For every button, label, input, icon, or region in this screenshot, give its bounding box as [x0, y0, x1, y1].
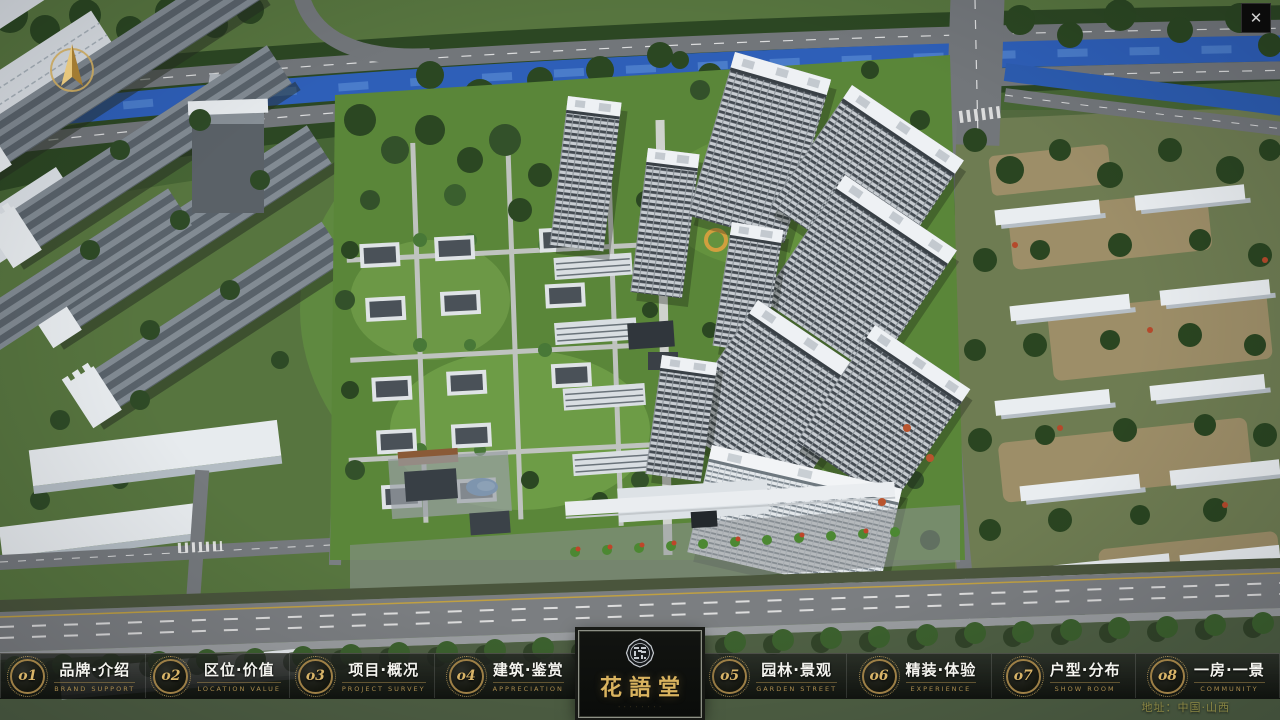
nav-group-left: o1 品牌·介绍 BRAND SUPPORT o2 区位·价值 LOCATION…	[0, 654, 578, 698]
nav-badge-02: o2	[153, 659, 188, 694]
nav-item-project-survey[interactable]: o3 项目·概况 PROJECT SURVEY	[289, 654, 434, 698]
nav-badge-07: o7	[1006, 659, 1041, 694]
nav-label: 品牌·介绍	[59, 659, 130, 680]
project-name: 花語堂	[593, 670, 687, 702]
nav-group-right: o5 园林·景观 GARDEN STREET o6 精装·体验 EXPERIEN…	[702, 654, 1280, 698]
project-3d-view[interactable]	[0, 0, 1280, 720]
seal-icon	[625, 638, 655, 668]
nav-label: 项目·概况	[348, 659, 419, 680]
aerial-render	[0, 0, 1280, 720]
nav-badge-04: o4	[449, 659, 484, 694]
nav-label: 精装·体验	[906, 659, 977, 680]
nav-label: 区位·价值	[204, 659, 275, 680]
logo-tagline: · · · · · · · ·	[618, 704, 662, 709]
nav-sublabel: COMMUNITY	[1194, 682, 1265, 693]
nav-item-architecture[interactable]: o4 建筑·鉴赏 APPRECIATION	[434, 654, 579, 698]
nav-item-garden-landscape[interactable]: o5 园林·景观 GARDEN STREET	[702, 654, 846, 698]
project-logo[interactable]: 花語堂 · · · · · · · ·	[578, 630, 702, 718]
compass-icon	[44, 38, 100, 98]
nav-item-room-view[interactable]: o8 一房·一景 COMMUNITY	[1135, 654, 1280, 698]
nav-sublabel: BRAND SUPPORT	[54, 682, 135, 693]
close-icon: ✕	[1250, 11, 1263, 26]
nav-sublabel: PROJECT SURVEY	[342, 682, 426, 693]
nav-label: 建筑·鉴赏	[493, 659, 564, 680]
nav-sublabel: LOCATION VALUE	[197, 682, 281, 693]
presentation-window: ✕ o1 品牌·介绍 BRAND SUPPORT o2 区位·价值 LOCATI…	[0, 0, 1280, 720]
nav-sublabel: EXPERIENCE	[906, 682, 977, 693]
nav-badge-05: o5	[712, 659, 747, 694]
close-button[interactable]: ✕	[1241, 3, 1271, 33]
nav-item-brand-intro[interactable]: o1 品牌·介绍 BRAND SUPPORT	[0, 654, 145, 698]
nav-label: 户型·分布	[1050, 659, 1121, 680]
nav-item-interior-experience[interactable]: o6 精装·体验 EXPERIENCE	[846, 654, 990, 698]
nav-badge-06: o6	[862, 659, 897, 694]
nav-item-location-value[interactable]: o2 区位·价值 LOCATION VALUE	[145, 654, 290, 698]
nav-badge-08: o8	[1150, 659, 1185, 694]
nav-badge-01: o1	[10, 659, 45, 694]
nav-sublabel: SHOW ROOM	[1050, 682, 1121, 693]
nav-sublabel: APPRECIATION	[493, 682, 564, 693]
nav-label: 一房·一景	[1194, 659, 1265, 680]
nav-item-floorplan-distribution[interactable]: o7 户型·分布 SHOW ROOM	[991, 654, 1135, 698]
nav-sublabel: GARDEN STREET	[756, 682, 837, 693]
nav-badge-03: o3	[298, 659, 333, 694]
nav-label: 园林·景观	[761, 659, 832, 680]
project-address: 地址：中国·山西	[1142, 699, 1231, 715]
